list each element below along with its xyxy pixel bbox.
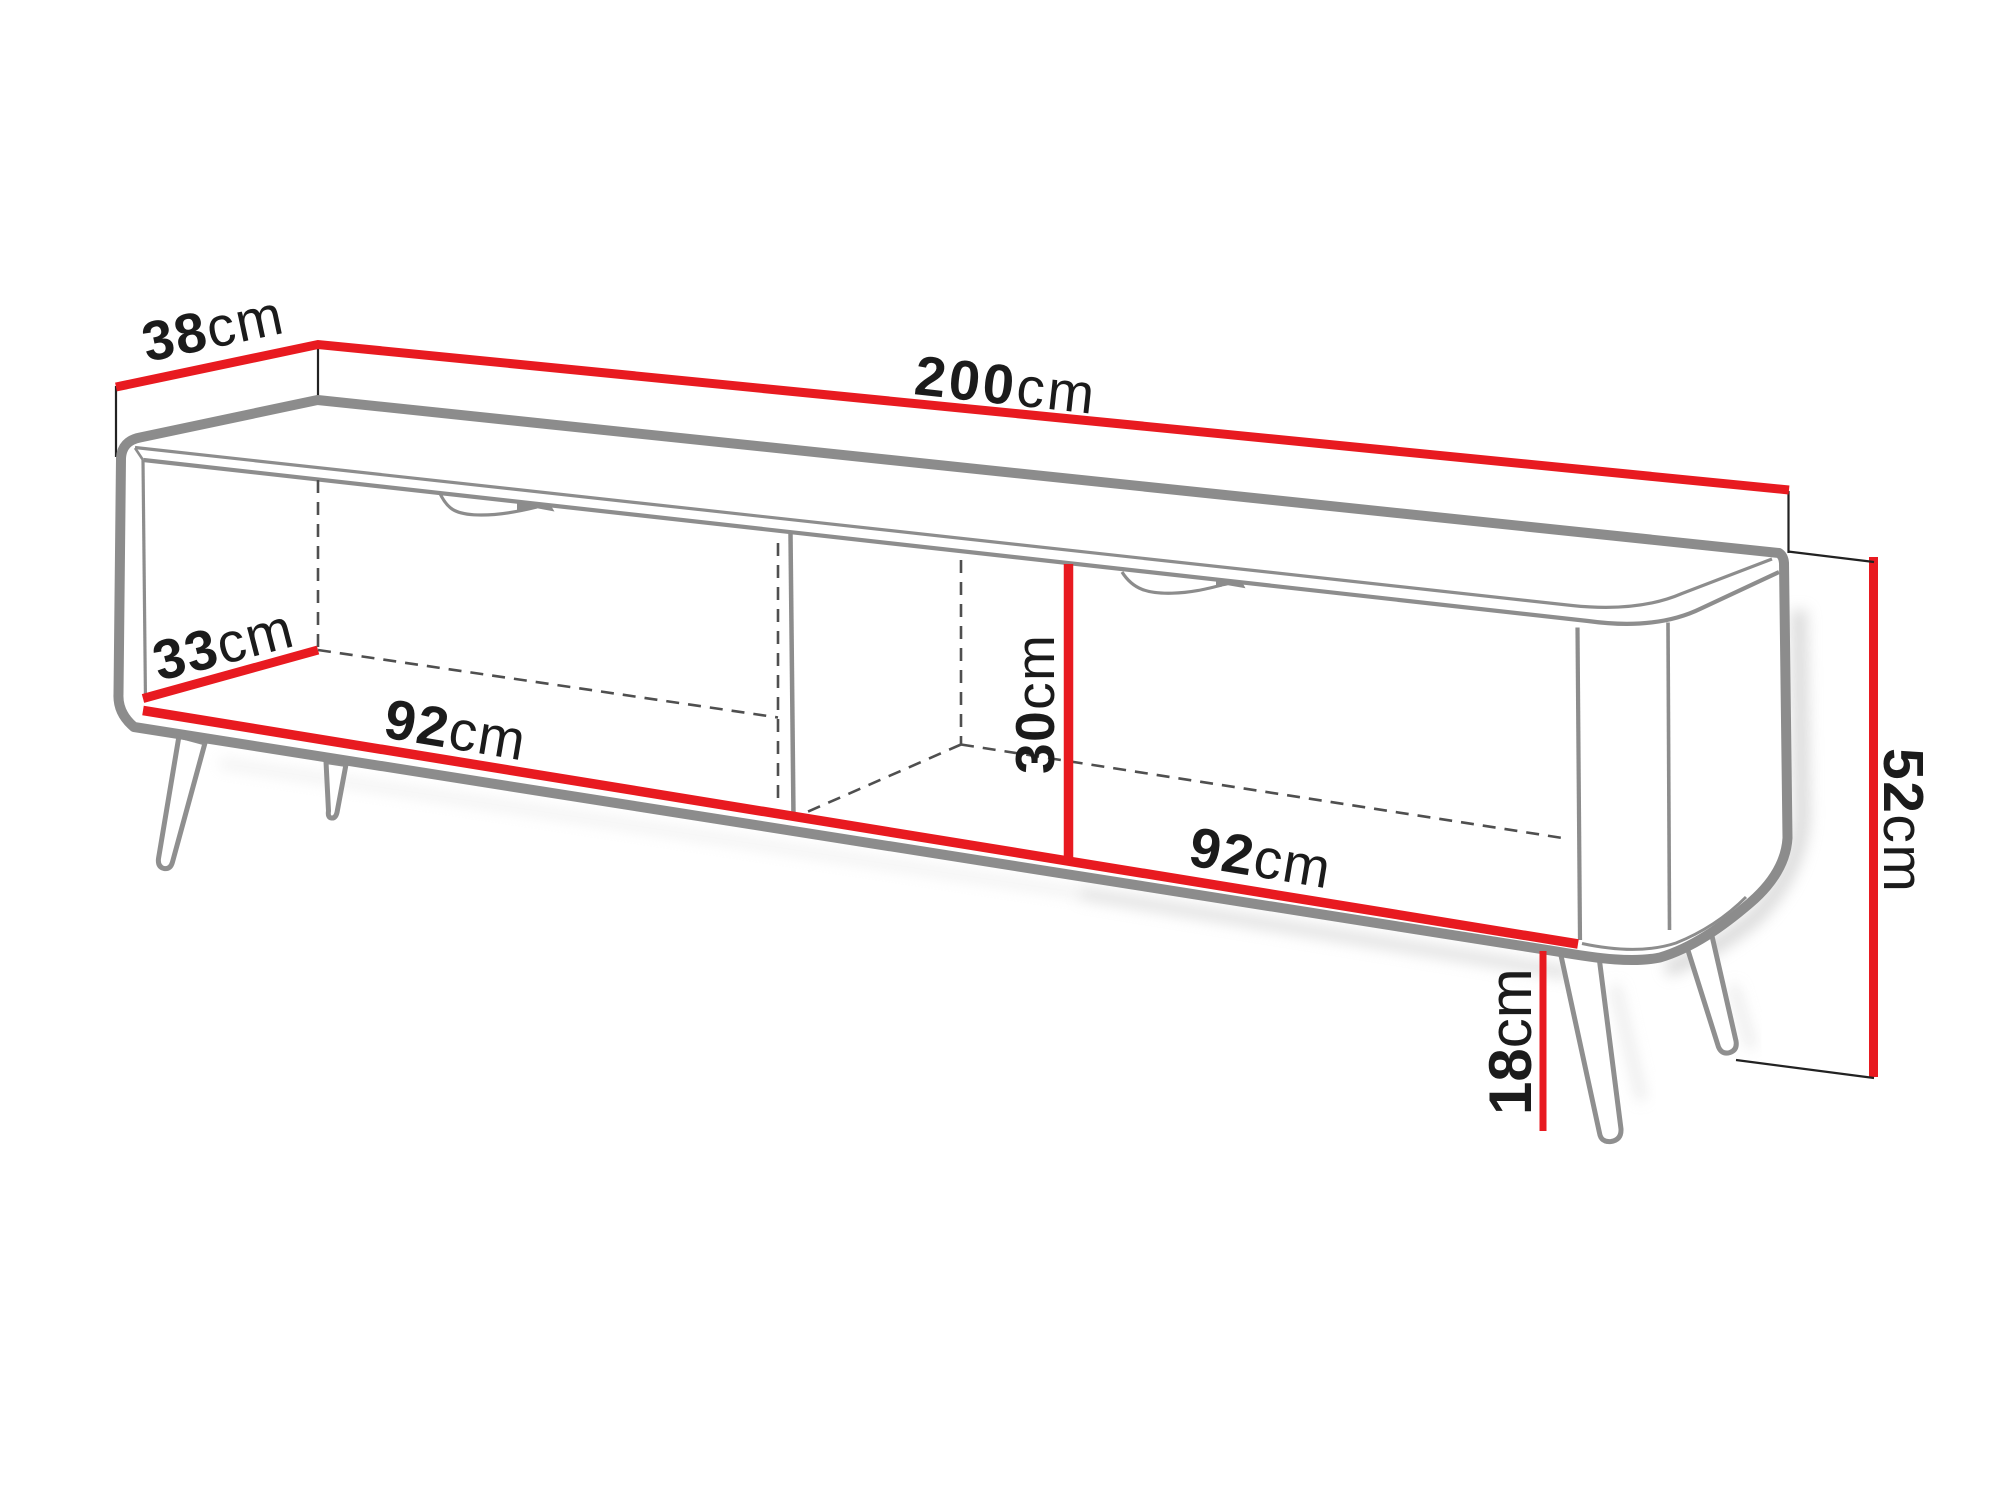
svg-text:18cm: 18cm xyxy=(1477,968,1544,1115)
svg-text:52cm: 52cm xyxy=(1871,748,1935,893)
svg-text:30cm: 30cm xyxy=(1004,633,1066,774)
